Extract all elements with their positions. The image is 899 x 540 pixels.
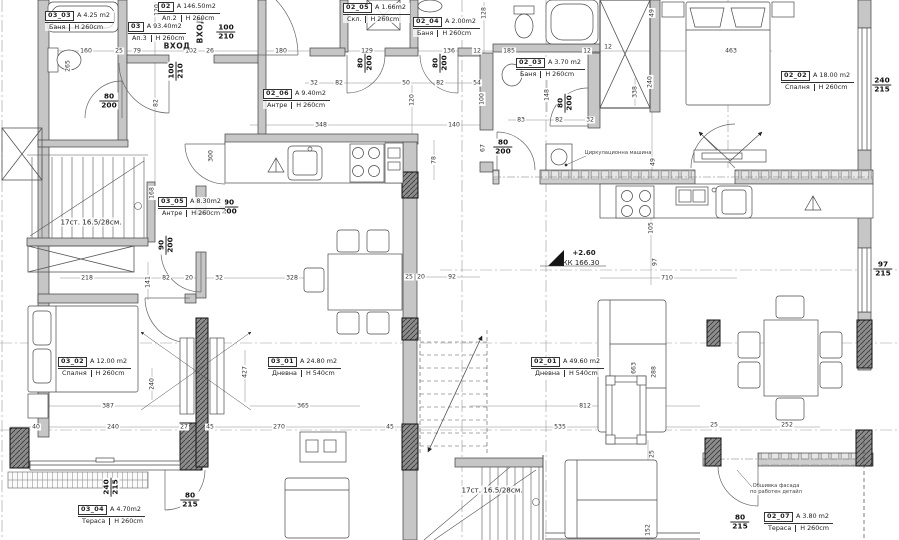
sofa-03 xyxy=(285,432,349,538)
label-row-top: 03_03A 4.25 m2 xyxy=(45,11,114,23)
room-height: H 260cm xyxy=(74,24,103,32)
dimension: 78 xyxy=(431,155,438,165)
dimension: 83 xyxy=(516,117,526,124)
kitchen-02 xyxy=(600,184,873,218)
label-row-bottom: ДневнаH 540cm xyxy=(268,369,341,378)
label-row-top: 02_04A 2.00m2 xyxy=(413,17,480,29)
dimension: 168 xyxy=(149,186,156,200)
door-size-label: 90200 xyxy=(158,235,175,254)
label-row-bottom: СпалняH 260cm xyxy=(58,369,131,378)
dimension: 25 xyxy=(404,274,414,281)
door-size-label: 80200 xyxy=(557,93,574,112)
door-height: 210 xyxy=(216,33,235,41)
room-area: A 12.00 m2 xyxy=(90,358,129,366)
door-size-label: 100210 xyxy=(216,24,235,41)
door-height: 200 xyxy=(566,93,574,112)
door-size-label: 97215 xyxy=(873,261,892,278)
room-height: H 260cm xyxy=(296,102,325,110)
dimension: 270 xyxy=(272,424,286,431)
wall-centerlines xyxy=(493,177,873,459)
dimension: 40 xyxy=(31,424,41,431)
room-label: 03_03A 4.25 m2БаняH 260cm xyxy=(45,11,114,31)
dimension: 49 xyxy=(650,157,657,167)
room-id: 02_05 xyxy=(343,3,372,13)
dimension: 240 xyxy=(106,424,120,431)
door-height: 200 xyxy=(167,235,175,254)
dimension: 105 xyxy=(648,221,655,235)
room-area: A 146.50m2 xyxy=(177,3,218,11)
dimension: 32 xyxy=(585,117,595,124)
label-row-top: 03_02A 12.00 m2 xyxy=(58,357,131,369)
dimension: 67 xyxy=(480,143,487,153)
room-name: Антре xyxy=(267,102,292,110)
room-height: H 260cm xyxy=(442,30,471,38)
dimension: 152 xyxy=(645,523,652,537)
dimension: 25 xyxy=(649,449,656,459)
room-height: H 540cm xyxy=(569,370,598,378)
dimension: 120 xyxy=(409,93,416,107)
dimension: 25 xyxy=(709,422,719,429)
level-value: +2.60 xyxy=(572,249,595,257)
door-size-label: 80200 xyxy=(493,139,512,156)
annotation: Циркулационна машина xyxy=(585,150,652,156)
dimension: 148 xyxy=(544,88,551,102)
room-label: 02_02A 18.00 m2СпалняH 260cm xyxy=(781,71,854,91)
dimension: 12 xyxy=(603,44,613,51)
label-row-top: 02_02A 18.00 m2 xyxy=(781,71,854,83)
dimension: 82 xyxy=(161,275,171,282)
bed-02 xyxy=(662,2,794,162)
room-area: A 49.60 m2 xyxy=(563,358,602,366)
dimension: 338 xyxy=(632,85,639,99)
kitchen-03 xyxy=(225,142,403,183)
room-height: H 260cm xyxy=(800,525,829,533)
room-area: A 4.25 m2 xyxy=(77,12,112,20)
door-size-label: 100210 xyxy=(168,61,185,80)
sofa-02 xyxy=(565,300,666,538)
dimension: 240 xyxy=(149,377,156,391)
label-row-bottom: ТерасаH 260cm xyxy=(764,524,833,533)
room-label: 03_04A 4.70m2ТерасаH 260cm xyxy=(78,505,145,525)
dimension: 387 xyxy=(101,403,115,410)
room-label: 03_05A 8.30m2АнтреH 260cm xyxy=(158,197,225,217)
room-name: Баня xyxy=(417,30,438,38)
room-area: A 1.66m2 xyxy=(375,4,408,12)
apartment-label: 03A 93.40m2Ап.3H 260cm xyxy=(128,22,186,42)
label-row-bottom: ДневнаH 540cm xyxy=(531,369,604,378)
dimension: 140 xyxy=(447,122,461,129)
dimension: 463 xyxy=(724,48,738,55)
room-id: 02 xyxy=(158,2,174,12)
label-row-bottom: АнтреH 260cm xyxy=(263,101,330,110)
room-height: H 260cm xyxy=(819,84,848,92)
annotation: 17ст. 16.5/28см. xyxy=(461,486,522,495)
dimension: 141 xyxy=(145,275,152,289)
door-height: 215 xyxy=(873,270,892,278)
room-id: 03_04 xyxy=(78,505,107,515)
room-id: 03_01 xyxy=(268,357,297,367)
dimension: 26 xyxy=(205,48,215,55)
room-label: 02_04A 2.00m2БаняH 260cm xyxy=(413,17,480,37)
room-id: 03 xyxy=(128,22,144,32)
label-row-top: 02_01A 49.60 m2 xyxy=(531,357,604,369)
terrace-railing xyxy=(8,472,148,488)
dimension: 97 xyxy=(652,257,659,267)
door-height: 215 xyxy=(872,86,891,94)
room-area: A 4.70m2 xyxy=(110,506,143,514)
room-label: 02_06A 9.40m2АнтреH 260cm xyxy=(263,89,330,109)
room-area: A 2.00m2 xyxy=(445,18,478,26)
dimension: 32 xyxy=(214,275,224,282)
label-row-bottom: ТерасаH 260cm xyxy=(78,517,145,526)
room-height: H 260cm xyxy=(191,210,220,218)
room-label: 03_02A 12.00 m2СпалняH 260cm xyxy=(58,357,131,377)
dimension: 45 xyxy=(205,424,215,431)
dimension: 27 xyxy=(179,424,189,431)
label-row-bottom: БаняH 260cm xyxy=(45,23,114,32)
dining-table-02 xyxy=(738,296,842,420)
room-id: 02_04 xyxy=(413,17,442,27)
room-id: 03_03 xyxy=(45,11,74,21)
dimension: 252 xyxy=(780,422,794,429)
room-id: 02_07 xyxy=(764,512,793,522)
level-datum: КК 166.30 xyxy=(563,259,600,267)
door-height: 210 xyxy=(177,61,185,80)
dimension: 12 xyxy=(472,48,482,55)
dimension: 710 xyxy=(660,275,674,282)
room-name: Антре xyxy=(162,210,187,218)
room-label: 02_05A 1.66m2Скл.H 260cm xyxy=(343,3,410,23)
dimension: 328 xyxy=(285,275,299,282)
room-area: A 3.70 m2 xyxy=(548,59,583,67)
dimension: 100 xyxy=(479,92,486,106)
door-height: 215 xyxy=(730,523,749,531)
door-height: 200 xyxy=(366,53,374,72)
stairs-lower xyxy=(420,330,543,540)
door-size-label: 80215 xyxy=(180,492,199,509)
room-height: H 260cm xyxy=(114,518,143,526)
room-id: 02_06 xyxy=(263,89,292,99)
floor-plan-drawing xyxy=(0,0,899,540)
room-name: Спалня xyxy=(62,370,92,378)
dimension: 50 xyxy=(401,80,411,87)
label-row-bottom: СпалняH 260cm xyxy=(781,83,854,92)
dimension: 348 xyxy=(314,122,328,129)
dimension: 128 xyxy=(481,6,488,20)
room-name: Баня xyxy=(49,24,70,32)
label-row-top: 03_01A 24.80 m2 xyxy=(268,357,341,369)
room-id: 03_05 xyxy=(158,197,187,207)
room-area: A 3.80 m2 xyxy=(796,513,831,521)
door-height: 200 xyxy=(493,148,512,156)
room-name: Ап.3 xyxy=(132,35,152,43)
door-size-label: 80200 xyxy=(99,93,118,110)
dimension: 20 xyxy=(416,274,426,281)
dimension: 663 xyxy=(631,361,638,375)
label-row-bottom: БаняH 260cm xyxy=(516,70,585,79)
dimension: 185 xyxy=(502,48,516,55)
room-area: A 93.40m2 xyxy=(147,23,184,31)
room-name: Тераса xyxy=(768,525,796,533)
dimension: 300 xyxy=(208,149,215,163)
room-height: H 260cm xyxy=(96,370,125,378)
dimension: 45 xyxy=(385,424,395,431)
room-area: A 9.40m2 xyxy=(295,90,328,98)
dimension: 427 xyxy=(242,365,249,379)
dimension: 25 xyxy=(114,48,124,55)
door-height: 200 xyxy=(99,102,118,110)
label-row-bottom: Ап.3H 260cm xyxy=(128,34,186,43)
dimension: 812 xyxy=(578,403,592,410)
label-row-top: 02_05A 1.66m2 xyxy=(343,3,410,15)
room-label: 03_01A 24.80 m2ДневнаH 540cm xyxy=(268,357,341,377)
dimension: 288 xyxy=(651,365,658,379)
room-label: 02_01A 49.60 m2ДневнаH 540cm xyxy=(531,357,604,377)
dimension: 20 xyxy=(184,275,194,282)
dimension: 82 xyxy=(554,117,564,124)
dimension: 265 xyxy=(65,59,72,73)
room-height: H 260cm xyxy=(186,15,215,23)
label-row-top: 02_07A 3.80 m2 xyxy=(764,512,833,524)
dimension: 218 xyxy=(80,275,94,282)
annotation: ВХОД xyxy=(164,42,191,51)
label-row-bottom: БаняH 260cm xyxy=(413,29,480,38)
room-height: H 540cm xyxy=(306,370,335,378)
room-label: 02_03A 3.70 m2БаняH 260cm xyxy=(516,58,585,78)
room-name: Спалня xyxy=(785,84,815,92)
room-area: A 24.80 m2 xyxy=(300,358,339,366)
dimension: 92 xyxy=(447,274,457,281)
dimension: 79 xyxy=(132,48,142,55)
room-name: Тераса xyxy=(82,518,110,526)
room-name: Баня xyxy=(520,71,541,79)
dimension: 160 xyxy=(79,48,93,55)
door-size-label: 80200 xyxy=(432,53,449,72)
room-id: 03_02 xyxy=(58,357,87,367)
room-id: 02_02 xyxy=(781,71,810,81)
room-height: H 260cm xyxy=(370,16,399,24)
door-height: 200 xyxy=(441,53,449,72)
dimension: 240 xyxy=(647,75,654,89)
door-size-label: 240215 xyxy=(103,477,120,496)
door-height: 215 xyxy=(112,477,120,496)
annotation: по работен детайл xyxy=(750,489,802,495)
dimension: 54 xyxy=(472,80,482,87)
label-row-top: 02_06A 9.40m2 xyxy=(263,89,330,101)
dimension: 49 xyxy=(649,8,656,18)
dimension: 180 xyxy=(274,48,288,55)
label-row-top: 03_05A 8.30m2 xyxy=(158,197,225,209)
dimension: 12 xyxy=(582,48,592,55)
door-size-label: 240215 xyxy=(872,77,891,94)
label-row-top: 03A 93.40m2 xyxy=(128,22,186,34)
room-id: 02_03 xyxy=(516,58,545,68)
room-area: A 8.30m2 xyxy=(190,198,223,206)
room-height: H 260cm xyxy=(156,35,185,43)
dimension: 32 xyxy=(309,80,319,87)
dining-table-03 xyxy=(304,230,402,334)
apartment-label: 02A 146.50m2Ап.2H 260cm xyxy=(158,2,220,22)
room-name: Дневна xyxy=(535,370,565,378)
floor-plan-sheet: 02A 146.50m2Ап.2H 260cm03A 93.40m2Ап.3H … xyxy=(0,0,899,540)
room-area: A 18.00 m2 xyxy=(813,72,852,80)
room-name: Дневна xyxy=(272,370,302,378)
room-height: H 260cm xyxy=(545,71,574,79)
dimension: 82 xyxy=(435,80,445,87)
label-row-bottom: АнтреH 260cm xyxy=(158,209,225,218)
dimension: 535 xyxy=(553,424,567,431)
dimension: 365 xyxy=(296,403,310,410)
room-name: Скл. xyxy=(347,16,366,24)
room-label: 02_07A 3.80 m2ТерасаH 260cm xyxy=(764,512,833,532)
annotation: 17ст. 16.5/28см. xyxy=(60,218,121,227)
door-height: 215 xyxy=(180,501,199,509)
label-row-top: 02_03A 3.70 m2 xyxy=(516,58,585,70)
label-row-top: 02A 146.50m2 xyxy=(158,2,220,14)
label-row-top: 03_04A 4.70m2 xyxy=(78,505,145,517)
door-size-label: 80215 xyxy=(730,514,749,531)
room-id: 02_01 xyxy=(531,357,560,367)
dimension: 82 xyxy=(153,98,160,108)
dimension: 82 xyxy=(334,80,344,87)
door-size-label: 80200 xyxy=(357,53,374,72)
label-row-bottom: Скл.H 260cm xyxy=(343,15,410,24)
